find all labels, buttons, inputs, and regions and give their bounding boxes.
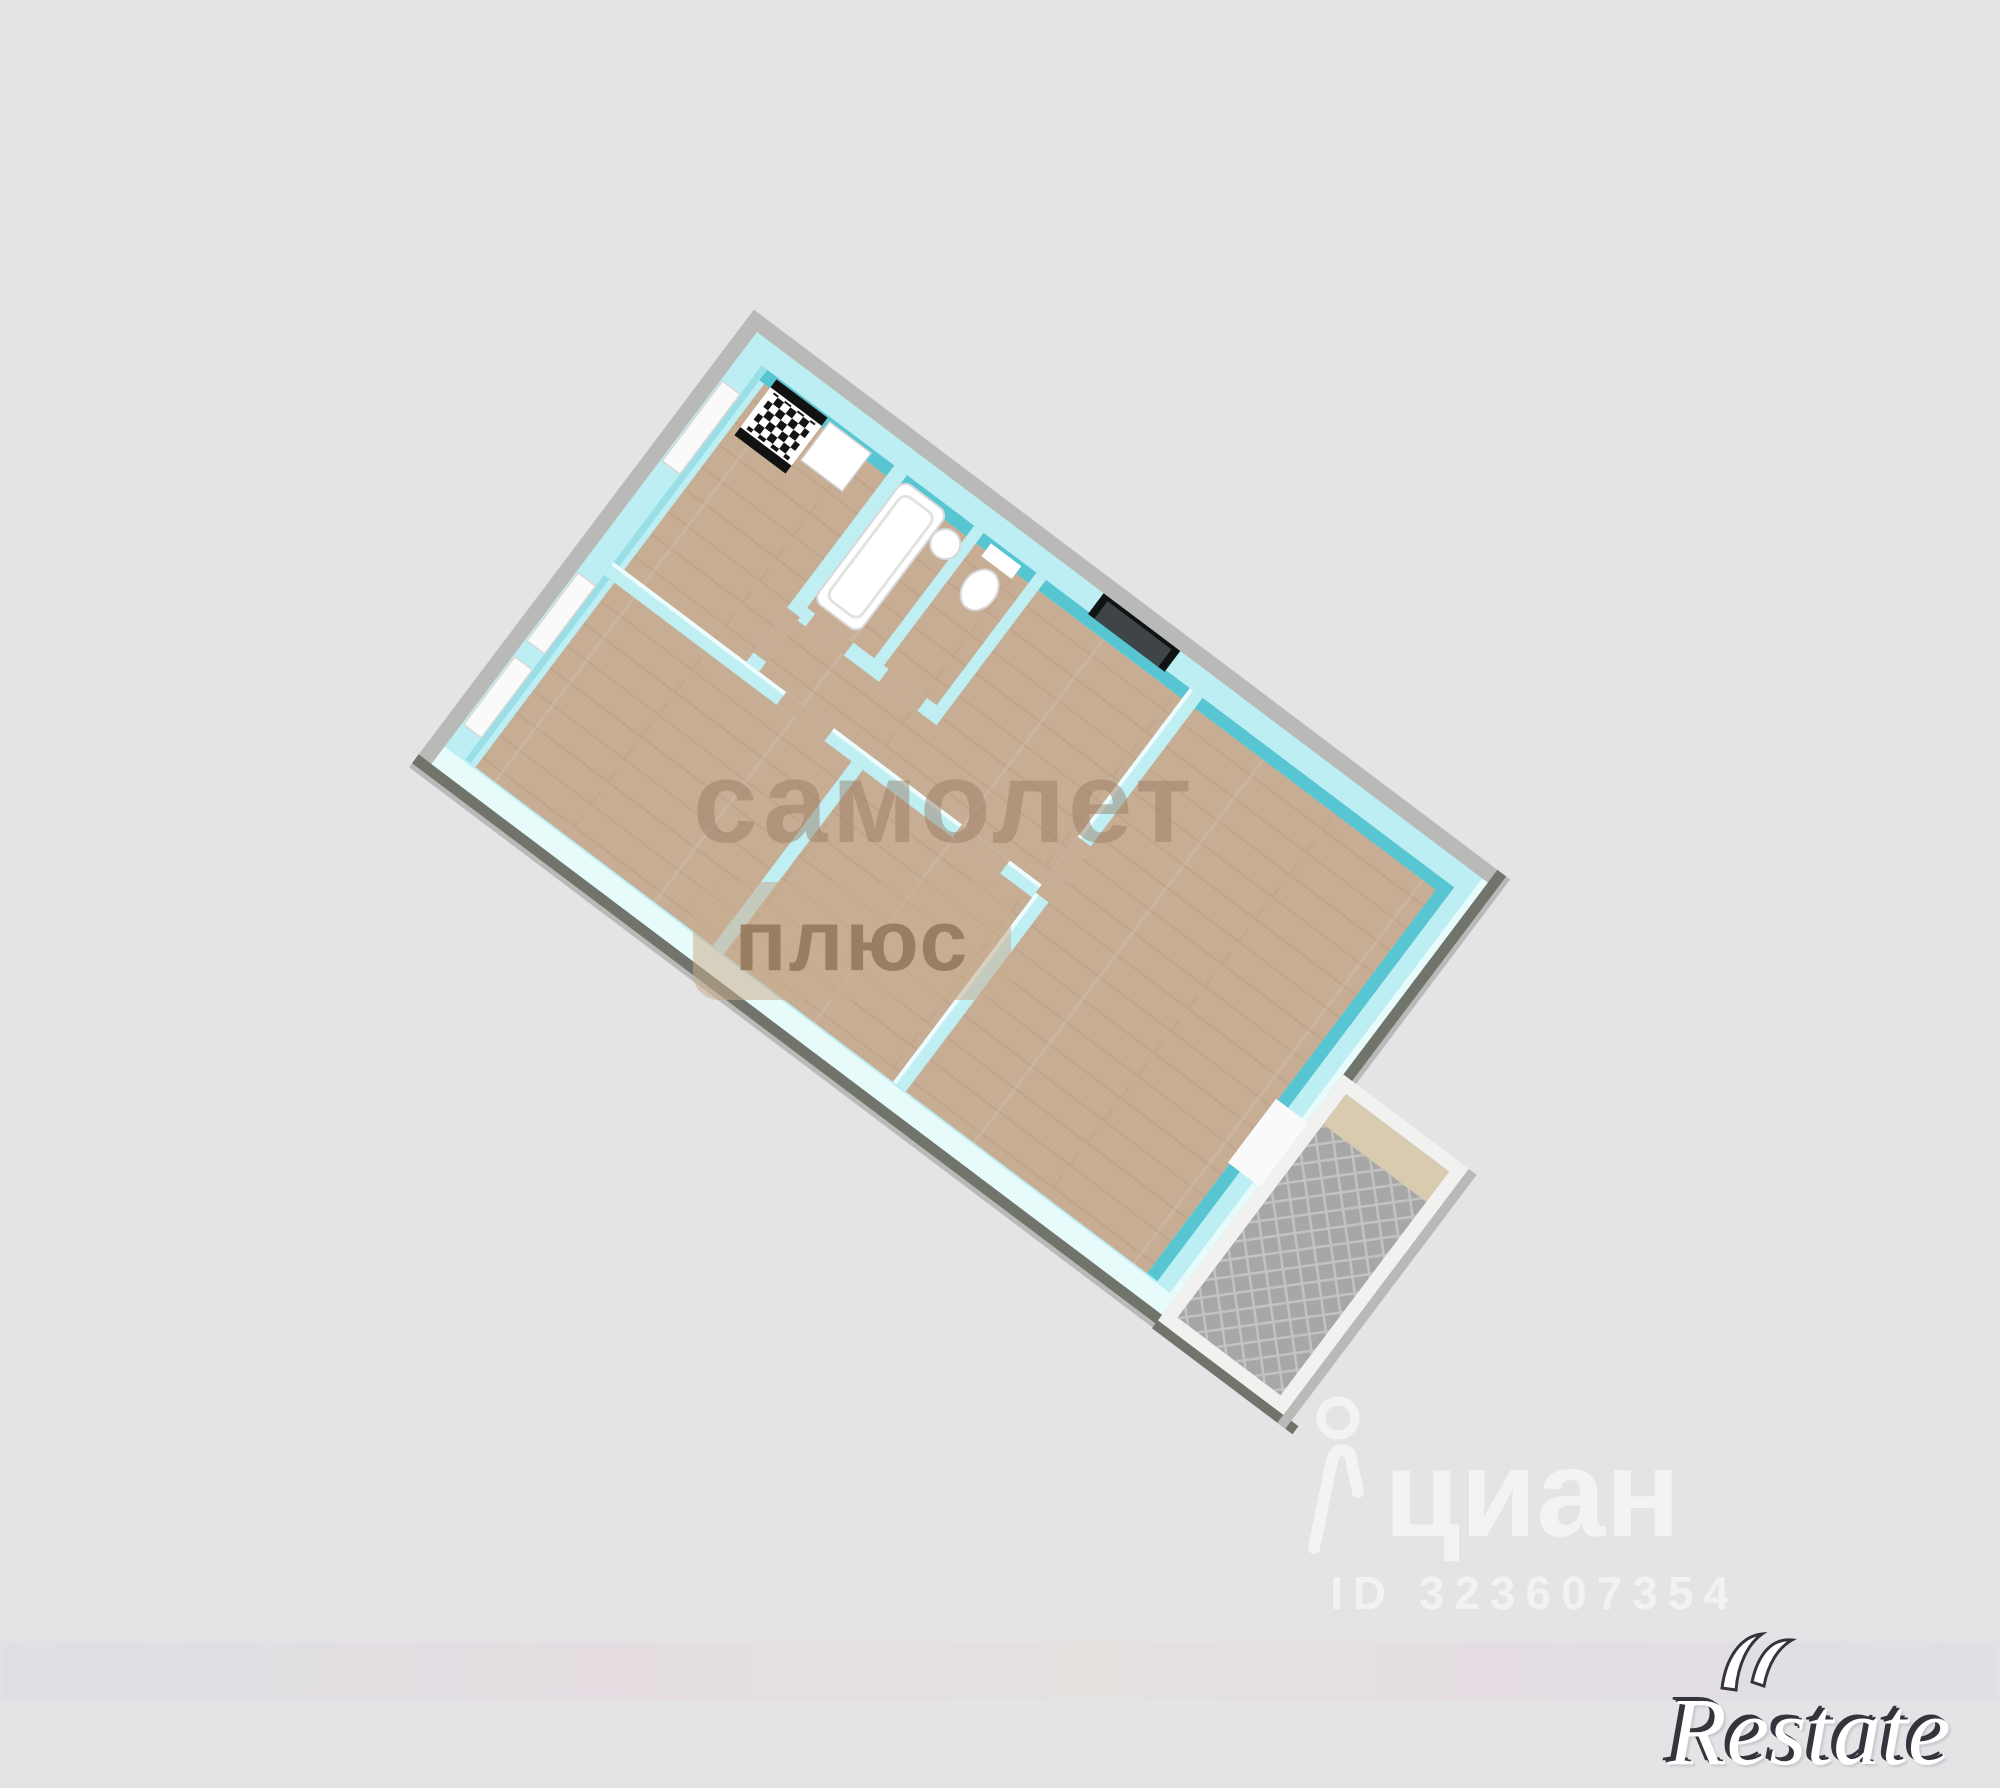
cian-person-icon — [1300, 1396, 1370, 1556]
restate-logo-text: Restate — [1668, 1684, 1951, 1780]
watermark-plus-text: плюс — [735, 892, 970, 991]
restate-logo: Restate — [1668, 1656, 2000, 1788]
watermark-samolet: самолет плюс — [693, 744, 1196, 1000]
watermark-samolet-text: самолет — [693, 744, 1196, 860]
watermark-cian-text: циан — [1384, 1432, 1680, 1556]
watermark-cian-id: ID 323607354 — [1330, 1566, 1739, 1620]
watermark-cian: циан ID 323607354 — [1300, 1396, 1739, 1620]
watermark-plus-box: плюс — [693, 882, 1011, 1000]
watermark-cian-row: циан — [1300, 1396, 1739, 1556]
screenshot-root: самолет плюс циан ID 323607354 Restate — [0, 0, 2000, 1788]
